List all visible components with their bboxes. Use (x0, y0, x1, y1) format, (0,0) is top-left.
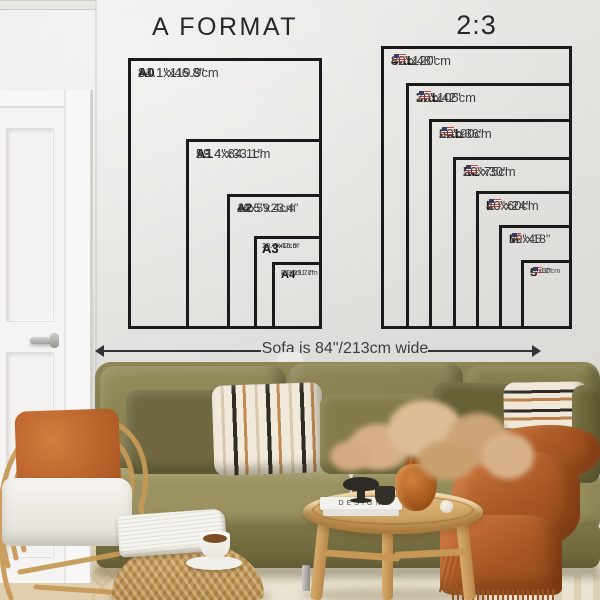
dried-flowers (482, 433, 534, 479)
arrow-right-icon (532, 345, 541, 357)
table-shadow (300, 588, 490, 600)
size-box-a4: A4 8.3"x11.7" 21x29.7cm (272, 262, 322, 329)
door-handle-rosette (50, 333, 59, 348)
saucer (186, 556, 242, 570)
dimension-line (103, 350, 261, 352)
coffee (203, 534, 227, 543)
size-box-s: S 8"x12" 20x30cm (521, 260, 572, 329)
dimension-line (428, 350, 533, 352)
ratio-chart-title: 2:3 (381, 10, 572, 41)
white-ball (440, 500, 453, 513)
dried-flowers (418, 440, 476, 480)
white-chair-cushion (2, 478, 132, 546)
dried-flowers (330, 441, 370, 471)
table-leg (382, 532, 393, 600)
black-bowl (350, 498, 372, 503)
sofa-leg (302, 565, 310, 591)
door-panel (6, 128, 54, 322)
striped-pillow (211, 382, 324, 476)
a-format-title: A FORMAT (128, 13, 322, 42)
poster-size-guide-photo: A FORMAT A0 31.1"x46.8"84.1x119.9cm A1 2… (0, 0, 600, 600)
book (323, 509, 399, 516)
black-cup (375, 486, 395, 505)
wall-molding (0, 0, 96, 10)
